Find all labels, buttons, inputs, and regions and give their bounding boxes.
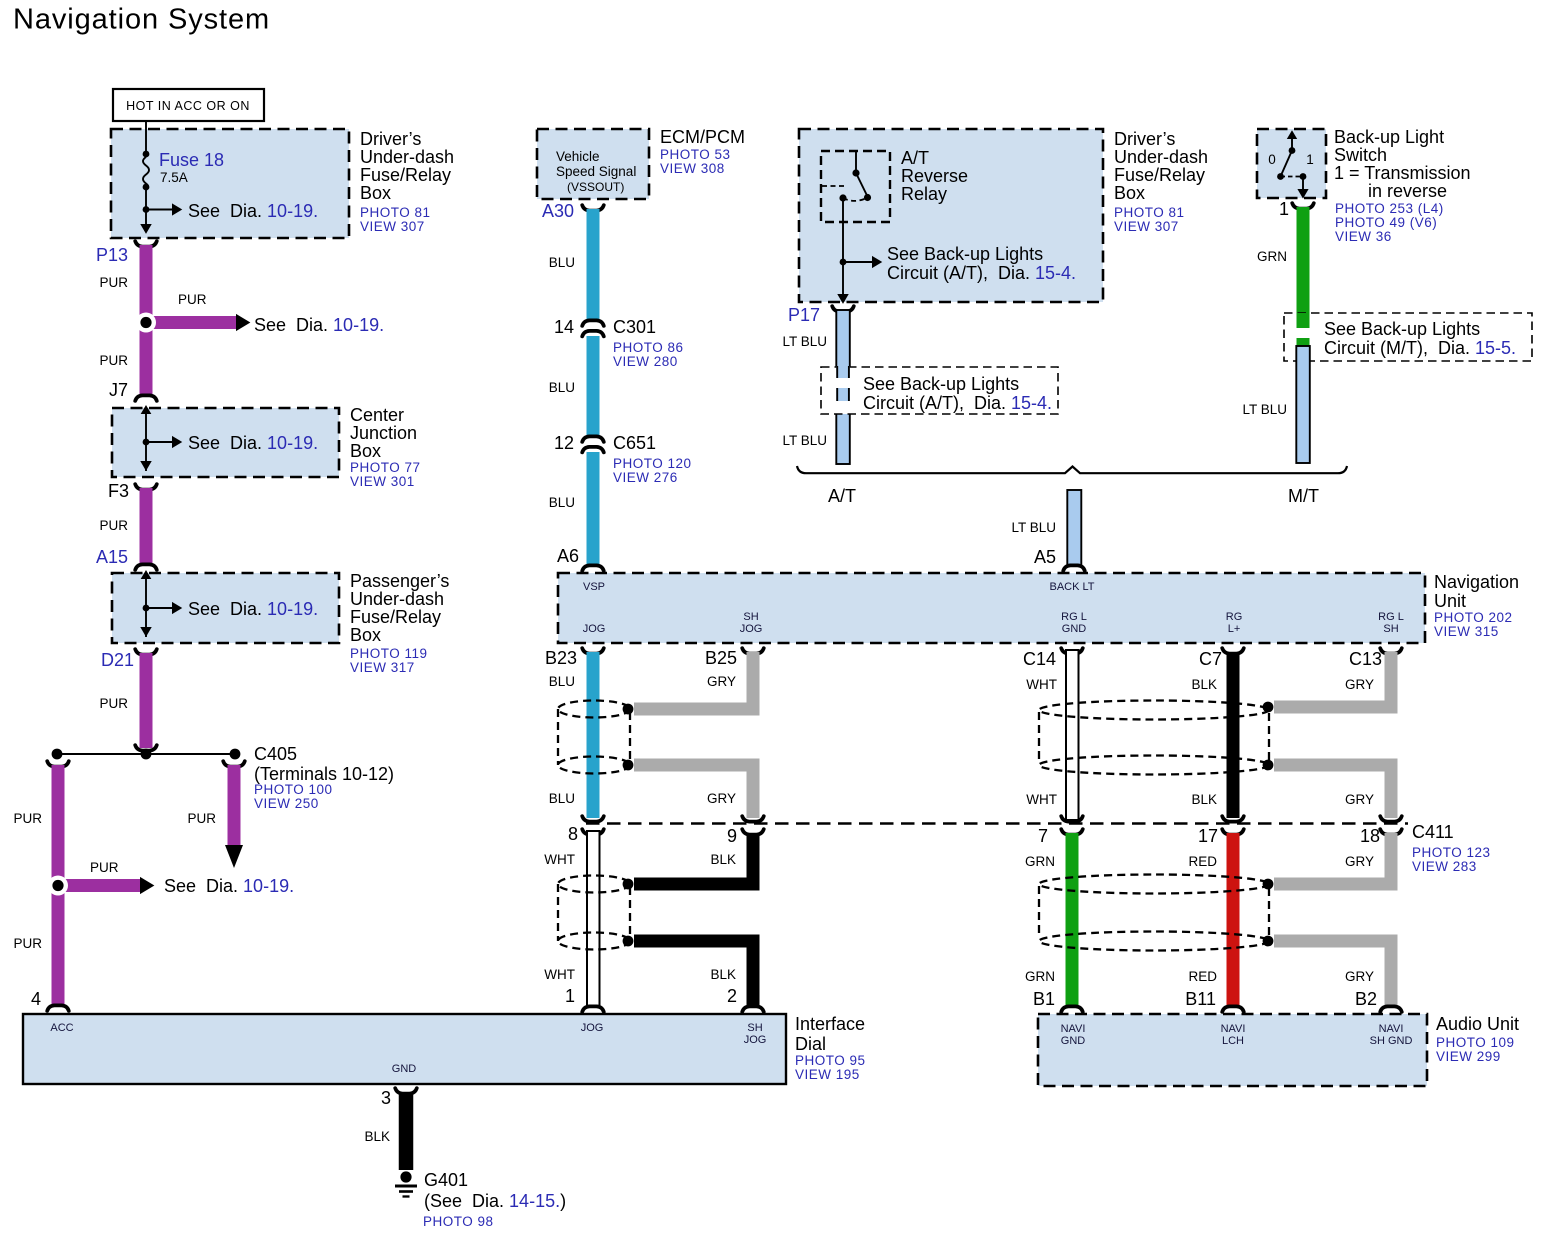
svg-text:See Dia. 10-19.: See Dia. 10-19. bbox=[254, 315, 384, 335]
svg-text:17: 17 bbox=[1198, 826, 1218, 846]
svg-text:JOG: JOG bbox=[744, 1034, 767, 1046]
svg-text:VIEW 283: VIEW 283 bbox=[1412, 859, 1477, 874]
svg-text:LT BLU: LT BLU bbox=[782, 334, 827, 349]
svg-text:(See Dia. 14-15.): (See Dia. 14-15.) bbox=[424, 1191, 566, 1211]
svg-text:VIEW 299: VIEW 299 bbox=[1436, 1049, 1501, 1064]
svg-text:PHOTO 53: PHOTO 53 bbox=[660, 147, 731, 162]
svg-text:PUR: PUR bbox=[99, 518, 128, 533]
svg-text:PHOTO 86: PHOTO 86 bbox=[613, 340, 684, 355]
svg-text:Interface: Interface bbox=[795, 1014, 865, 1034]
svg-text:Speed Signal: Speed Signal bbox=[556, 164, 636, 179]
svg-text:Switch: Switch bbox=[1334, 145, 1387, 165]
svg-text:WHT: WHT bbox=[544, 852, 575, 867]
svg-text:Fuse/Relay: Fuse/Relay bbox=[350, 607, 441, 627]
svg-text:18: 18 bbox=[1360, 826, 1380, 846]
svg-text:M/T: M/T bbox=[1288, 486, 1319, 506]
svg-text:PHOTO 120: PHOTO 120 bbox=[613, 456, 692, 471]
svg-text:Box: Box bbox=[1114, 183, 1145, 203]
svg-text:VIEW 276: VIEW 276 bbox=[613, 470, 678, 485]
svg-text:A30: A30 bbox=[542, 201, 574, 221]
svg-text:GRY: GRY bbox=[1345, 677, 1374, 692]
svg-text:WHT: WHT bbox=[544, 967, 575, 982]
svg-text:Under-dash: Under-dash bbox=[360, 147, 454, 167]
svg-text:Fuse/Relay: Fuse/Relay bbox=[360, 165, 451, 185]
svg-text:RG L: RG L bbox=[1061, 611, 1087, 623]
svg-text:PHOTO 123: PHOTO 123 bbox=[1412, 845, 1491, 860]
svg-text:B11: B11 bbox=[1185, 989, 1216, 1009]
svg-text:14: 14 bbox=[554, 317, 574, 337]
svg-text:Under-dash: Under-dash bbox=[350, 589, 444, 609]
svg-text:PUR: PUR bbox=[99, 275, 128, 290]
svg-text:SH: SH bbox=[747, 1022, 762, 1034]
svg-text:Fuse 18: Fuse 18 bbox=[159, 150, 224, 170]
svg-text:BLU: BLU bbox=[549, 791, 575, 806]
svg-text:PHOTO 95: PHOTO 95 bbox=[795, 1053, 866, 1068]
svg-text:GRY: GRY bbox=[707, 791, 736, 806]
svg-text:Driver’s: Driver’s bbox=[360, 129, 421, 149]
svg-text:BLK: BLK bbox=[710, 852, 736, 867]
svg-text:See Back-up Lights: See Back-up Lights bbox=[863, 374, 1019, 394]
svg-text:BLU: BLU bbox=[549, 495, 575, 510]
svg-text:A/T: A/T bbox=[901, 148, 929, 168]
svg-text:C14: C14 bbox=[1023, 649, 1056, 669]
svg-text:C405: C405 bbox=[254, 744, 297, 764]
svg-text:J7: J7 bbox=[109, 380, 128, 400]
svg-text:Reverse: Reverse bbox=[901, 166, 968, 186]
svg-text:WHT: WHT bbox=[1026, 792, 1057, 807]
svg-text:VIEW 280: VIEW 280 bbox=[613, 354, 678, 369]
svg-text:7.5A: 7.5A bbox=[160, 170, 188, 185]
svg-text:See Back-up Lights: See Back-up Lights bbox=[1324, 319, 1480, 339]
svg-text:(Terminals 10-12): (Terminals 10-12) bbox=[254, 764, 394, 784]
svg-text:PUR: PUR bbox=[13, 811, 42, 826]
svg-text:A6: A6 bbox=[557, 546, 579, 566]
svg-text:VIEW 250: VIEW 250 bbox=[254, 796, 319, 811]
svg-text:BLK: BLK bbox=[710, 967, 736, 982]
svg-text:VIEW 36: VIEW 36 bbox=[1335, 229, 1392, 244]
svg-text:Box: Box bbox=[360, 183, 391, 203]
svg-text:B1: B1 bbox=[1033, 989, 1055, 1009]
svg-text:JOG: JOG bbox=[581, 1022, 604, 1034]
svg-text:See Dia. 10-19.: See Dia. 10-19. bbox=[164, 876, 294, 896]
svg-text:JOG: JOG bbox=[583, 623, 606, 635]
svg-text:Circuit (A/T), Dia. 15-4.: Circuit (A/T), Dia. 15-4. bbox=[887, 263, 1076, 283]
svg-text:Dial: Dial bbox=[795, 1034, 826, 1054]
svg-text:Navigation: Navigation bbox=[1434, 572, 1519, 592]
svg-text:Unit: Unit bbox=[1434, 591, 1466, 611]
svg-text:RED: RED bbox=[1188, 854, 1217, 869]
svg-text:PHOTO 119: PHOTO 119 bbox=[350, 646, 428, 661]
svg-text:See Dia. 10-19.: See Dia. 10-19. bbox=[188, 201, 318, 221]
svg-text:in reverse: in reverse bbox=[1368, 181, 1447, 201]
svg-text:RG: RG bbox=[1226, 611, 1243, 623]
svg-text:A5: A5 bbox=[1034, 547, 1056, 567]
svg-text:Box: Box bbox=[350, 625, 381, 645]
svg-text:B2: B2 bbox=[1355, 989, 1377, 1009]
svg-text:See Back-up Lights: See Back-up Lights bbox=[887, 244, 1043, 264]
svg-text:PHOTO 49 (V6): PHOTO 49 (V6) bbox=[1335, 215, 1437, 230]
svg-text:1: 1 bbox=[565, 986, 575, 1006]
svg-text:8: 8 bbox=[568, 824, 578, 844]
svg-text:C13: C13 bbox=[1349, 649, 1382, 669]
svg-text:PHOTO 253 (L4): PHOTO 253 (L4) bbox=[1335, 201, 1444, 216]
svg-text:RED: RED bbox=[1188, 969, 1217, 984]
svg-text:Fuse/Relay: Fuse/Relay bbox=[1114, 165, 1205, 185]
svg-text:P13: P13 bbox=[96, 245, 128, 265]
svg-text:VSP: VSP bbox=[583, 581, 605, 593]
svg-text:NAVI: NAVI bbox=[1061, 1023, 1086, 1035]
svg-text:C411: C411 bbox=[1412, 822, 1454, 842]
svg-text:PHOTO 109: PHOTO 109 bbox=[1436, 1035, 1515, 1050]
svg-text:C301: C301 bbox=[613, 317, 656, 337]
svg-text:GRN: GRN bbox=[1025, 969, 1055, 984]
svg-text:GRN: GRN bbox=[1257, 249, 1287, 264]
svg-text:LCH: LCH bbox=[1222, 1035, 1244, 1047]
svg-text:(VSSOUT): (VSSOUT) bbox=[567, 180, 624, 194]
svg-text:PHOTO 77: PHOTO 77 bbox=[350, 460, 421, 475]
svg-text:PHOTO 100: PHOTO 100 bbox=[254, 782, 333, 797]
svg-text:BLU: BLU bbox=[549, 674, 575, 689]
svg-text:Junction: Junction bbox=[350, 423, 417, 443]
svg-text:BACK LT: BACK LT bbox=[1049, 581, 1094, 593]
svg-text:D21: D21 bbox=[101, 650, 134, 670]
svg-text:Circuit (M/T), Dia. 15-5.: Circuit (M/T), Dia. 15-5. bbox=[1324, 338, 1516, 358]
svg-text:VIEW 315: VIEW 315 bbox=[1434, 624, 1499, 639]
svg-text:PHOTO 81: PHOTO 81 bbox=[360, 205, 431, 220]
svg-text:BLK: BLK bbox=[364, 1129, 390, 1144]
svg-text:1 = Transmission: 1 = Transmission bbox=[1334, 163, 1471, 183]
svg-text:NAVI: NAVI bbox=[1379, 1023, 1404, 1035]
svg-text:ECM/PCM: ECM/PCM bbox=[660, 127, 745, 147]
svg-text:A/T: A/T bbox=[828, 486, 856, 506]
svg-text:4: 4 bbox=[31, 989, 41, 1009]
svg-text:Center: Center bbox=[350, 405, 404, 425]
svg-text:NAVI: NAVI bbox=[1221, 1023, 1246, 1035]
svg-text:VIEW 195: VIEW 195 bbox=[795, 1067, 860, 1082]
svg-text:GND: GND bbox=[1062, 623, 1087, 635]
svg-text:BLU: BLU bbox=[549, 255, 575, 270]
svg-text:VIEW 301: VIEW 301 bbox=[350, 474, 415, 489]
svg-text:BLK: BLK bbox=[1191, 677, 1217, 692]
svg-text:9: 9 bbox=[727, 826, 737, 846]
svg-text:GRY: GRY bbox=[707, 674, 736, 689]
svg-text:LT BLU: LT BLU bbox=[1242, 402, 1287, 417]
svg-text:LT BLU: LT BLU bbox=[1011, 520, 1056, 535]
svg-text:GND: GND bbox=[392, 1063, 417, 1075]
svg-text:VIEW 307: VIEW 307 bbox=[1114, 219, 1179, 234]
svg-text:PUR: PUR bbox=[90, 860, 119, 875]
svg-text:BLU: BLU bbox=[549, 380, 575, 395]
svg-text:GRY: GRY bbox=[1345, 969, 1374, 984]
svg-text:PUR: PUR bbox=[99, 696, 128, 711]
svg-text:12: 12 bbox=[554, 433, 574, 453]
svg-text:PUR: PUR bbox=[187, 811, 216, 826]
svg-text:PUR: PUR bbox=[178, 292, 207, 307]
svg-text:B25: B25 bbox=[705, 648, 737, 668]
svg-text:Relay: Relay bbox=[901, 184, 947, 204]
svg-text:Vehicle: Vehicle bbox=[556, 149, 600, 164]
svg-text:2: 2 bbox=[727, 986, 737, 1006]
svg-text:VIEW 308: VIEW 308 bbox=[660, 161, 725, 176]
svg-text:GRY: GRY bbox=[1345, 792, 1374, 807]
svg-text:GRY: GRY bbox=[1345, 854, 1374, 869]
svg-text:PHOTO 202: PHOTO 202 bbox=[1434, 610, 1513, 625]
svg-text:C7: C7 bbox=[1199, 649, 1222, 669]
svg-text:See Dia. 10-19.: See Dia. 10-19. bbox=[188, 599, 318, 619]
svg-text:RG L: RG L bbox=[1378, 611, 1404, 623]
svg-text:Under-dash: Under-dash bbox=[1114, 147, 1208, 167]
svg-text:HOT IN ACC OR ON: HOT IN ACC OR ON bbox=[126, 99, 250, 113]
svg-text:1: 1 bbox=[1306, 152, 1314, 167]
svg-text:A15: A15 bbox=[96, 547, 128, 567]
svg-text:VIEW 317: VIEW 317 bbox=[350, 660, 415, 675]
svg-text:SH: SH bbox=[743, 611, 758, 623]
svg-text:JOG: JOG bbox=[740, 623, 763, 635]
svg-text:C651: C651 bbox=[613, 433, 656, 453]
svg-text:Box: Box bbox=[350, 441, 381, 461]
svg-text:See Dia. 10-19.: See Dia. 10-19. bbox=[188, 433, 318, 453]
svg-text:Audio Unit: Audio Unit bbox=[1436, 1014, 1519, 1034]
svg-text:VIEW 307: VIEW 307 bbox=[360, 219, 425, 234]
svg-text:L+: L+ bbox=[1228, 623, 1241, 635]
svg-text:GND: GND bbox=[1061, 1035, 1086, 1047]
svg-text:PUR: PUR bbox=[13, 936, 42, 951]
svg-text:P17: P17 bbox=[788, 305, 820, 325]
svg-text:WHT: WHT bbox=[1026, 677, 1057, 692]
svg-text:LT BLU: LT BLU bbox=[782, 433, 827, 448]
svg-text:BLK: BLK bbox=[1191, 792, 1217, 807]
svg-text:SH: SH bbox=[1383, 623, 1398, 635]
svg-text:B23: B23 bbox=[545, 648, 577, 668]
svg-text:Passenger’s: Passenger’s bbox=[350, 571, 449, 591]
svg-text:Back-up Light: Back-up Light bbox=[1334, 127, 1444, 147]
svg-text:PUR: PUR bbox=[99, 353, 128, 368]
svg-text:F3: F3 bbox=[108, 481, 129, 501]
svg-text:ACC: ACC bbox=[50, 1022, 73, 1034]
svg-text:1: 1 bbox=[1279, 199, 1289, 219]
svg-text:GRN: GRN bbox=[1025, 854, 1055, 869]
svg-text:3: 3 bbox=[381, 1088, 391, 1108]
svg-text:G401: G401 bbox=[424, 1170, 468, 1190]
svg-text:SH GND: SH GND bbox=[1370, 1035, 1413, 1047]
svg-text:Circuit (A/T), Dia. 15-4.: Circuit (A/T), Dia. 15-4. bbox=[863, 393, 1052, 413]
svg-text:PHOTO 81: PHOTO 81 bbox=[1114, 205, 1185, 220]
svg-text:7: 7 bbox=[1038, 826, 1048, 846]
svg-text:Navigation System: Navigation System bbox=[13, 4, 270, 36]
svg-text:0: 0 bbox=[1268, 152, 1276, 167]
svg-text:PHOTO 98: PHOTO 98 bbox=[423, 1214, 494, 1229]
svg-text:Driver’s: Driver’s bbox=[1114, 129, 1175, 149]
